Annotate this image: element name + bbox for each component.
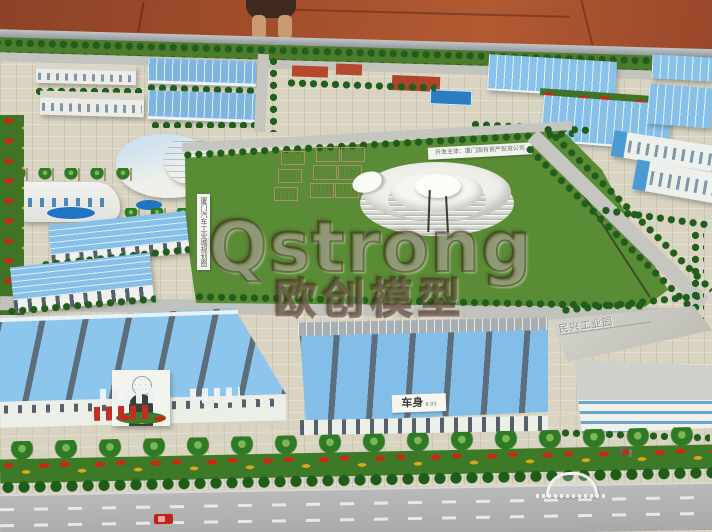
- pool: [46, 206, 96, 220]
- office-roof: [36, 63, 136, 72]
- figurine: [620, 446, 623, 454]
- red-trucks: [94, 405, 148, 421]
- sports-court: [336, 64, 362, 76]
- wood-block-model: [313, 165, 337, 180]
- wood-block-model: [281, 151, 305, 165]
- lane-dashes: [0, 512, 712, 527]
- white-trucks: [190, 387, 240, 404]
- watermark-brand: Qstrong: [140, 212, 600, 282]
- office-windows: [38, 73, 134, 83]
- car-windshield: [158, 516, 165, 522]
- body-shop-sign-text: 车身: [401, 394, 424, 412]
- factory-roof: [647, 84, 712, 129]
- wood-block-model: [310, 183, 334, 198]
- factory-roof: [148, 90, 261, 123]
- wood-block-model: [278, 169, 302, 183]
- office-roof: [40, 91, 144, 101]
- body-shop-sign: 车身 6.93: [392, 393, 447, 413]
- circular-tier3: [415, 174, 461, 198]
- office-building: [40, 91, 145, 118]
- office-block: [566, 358, 712, 434]
- red-car: [154, 514, 173, 524]
- gate-fence: [536, 494, 606, 498]
- figurine: [629, 449, 632, 457]
- tree-row: [150, 120, 265, 128]
- visitor-leg: [278, 15, 292, 39]
- white-trucks: [100, 387, 157, 405]
- wood-block-model: [316, 147, 340, 162]
- tree-column: [268, 56, 277, 132]
- sports-court: [292, 65, 328, 77]
- body-shop-sign-area: 6.93: [425, 401, 436, 407]
- wood-block-model: [274, 187, 298, 201]
- palm-row: [6, 168, 136, 181]
- office-windows: [42, 103, 142, 114]
- dormitory-gable: [611, 130, 628, 158]
- factory-roof: [651, 54, 712, 81]
- swimming-pool: [430, 89, 473, 106]
- lane-dashes: [0, 496, 712, 511]
- watermark: Qstrong 欧创模型: [140, 212, 600, 320]
- office-building: [36, 63, 136, 86]
- model-photo: 厦门汽车工业城规划图 开发主体：厦门国有资产投资公司: [0, 0, 712, 532]
